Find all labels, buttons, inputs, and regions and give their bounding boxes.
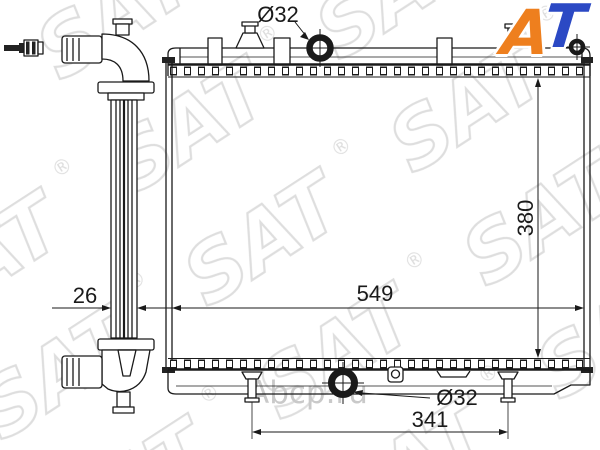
label-core-width: 549	[345, 282, 405, 306]
at-brand-logo: T A	[502, 0, 600, 60]
line-art	[4, 19, 593, 439]
tank-recess	[437, 371, 470, 377]
side-core	[111, 100, 137, 338]
label-inlet-diameter: Ø32	[250, 3, 306, 27]
radiator-technical-drawing: SAT ® Abcp.ru	[0, 0, 600, 450]
radiator-side-view	[62, 19, 154, 413]
label-core-thickness: 26	[64, 284, 106, 308]
side-bottom-outlet-elbow	[62, 339, 154, 413]
mounting-pin-right	[498, 372, 518, 402]
inlet-port	[301, 29, 339, 67]
core-bottom-serration	[168, 359, 590, 370]
label-core-height: 380	[514, 195, 538, 241]
logo-letter-a: A	[498, 0, 554, 69]
drain-fitting	[388, 367, 403, 382]
side-top-inlet-elbow	[62, 19, 154, 100]
mounting-pin-left	[242, 372, 262, 402]
top-bracket-2	[274, 38, 290, 65]
label-mount-spacing: 341	[400, 408, 460, 432]
top-bracket-1	[208, 38, 222, 65]
label-outlet-diameter: Ø32	[429, 386, 485, 410]
drain-plug-part	[4, 40, 43, 56]
top-bracket-3	[437, 38, 452, 65]
